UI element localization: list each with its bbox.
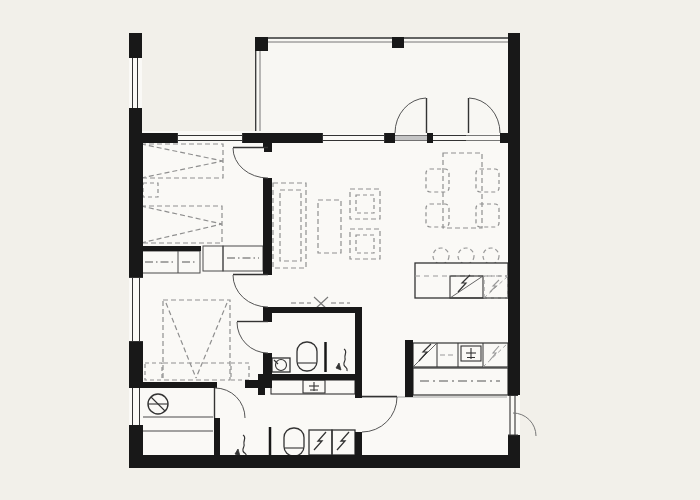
wall-kitchen-nook <box>405 340 413 397</box>
kitchen-island <box>415 263 508 298</box>
post-terrace-mid <box>392 37 404 48</box>
wall-sauna-right <box>214 418 220 455</box>
wall-left-b <box>129 342 143 387</box>
wall-top-a <box>129 133 177 143</box>
wall-right-a <box>508 33 520 395</box>
wall-bath-right-a <box>355 307 362 398</box>
wall-top-b <box>243 133 322 143</box>
window-bedroom1-gap <box>177 133 243 143</box>
wall-bottom <box>129 455 520 468</box>
wall-left-a <box>129 133 143 277</box>
window-left-top-gap <box>129 58 142 108</box>
floor-plan <box>0 0 700 500</box>
wall-core-d <box>263 353 272 374</box>
wall-core-b <box>263 178 272 275</box>
bath-counter <box>271 380 355 394</box>
floor-plan-svg <box>0 0 700 500</box>
wall-left-top-b <box>129 108 142 133</box>
wall-bed2-bath <box>245 380 272 388</box>
window-living-gap <box>322 133 385 143</box>
window-sauna-gap <box>129 388 143 425</box>
wall-top-pier2 <box>427 133 433 143</box>
wall-wc-bottom <box>258 374 362 380</box>
window-dining-gap <box>433 133 466 143</box>
window-bedroom2-gap <box>129 277 143 342</box>
wall-wc-top <box>263 307 362 313</box>
wall-left-top-a <box>129 33 142 58</box>
terrace-door2-gap <box>466 133 500 143</box>
wall-bath-right-b <box>355 432 362 455</box>
wall-bedroom-divider <box>129 246 201 251</box>
terrace-door1-threshold <box>395 136 427 141</box>
post-terrace-left <box>255 37 268 51</box>
terrace-floor <box>255 37 508 133</box>
wall-sauna-top <box>129 382 217 388</box>
wall-top-pier1 <box>385 133 395 143</box>
wall-core-c <box>263 313 272 322</box>
